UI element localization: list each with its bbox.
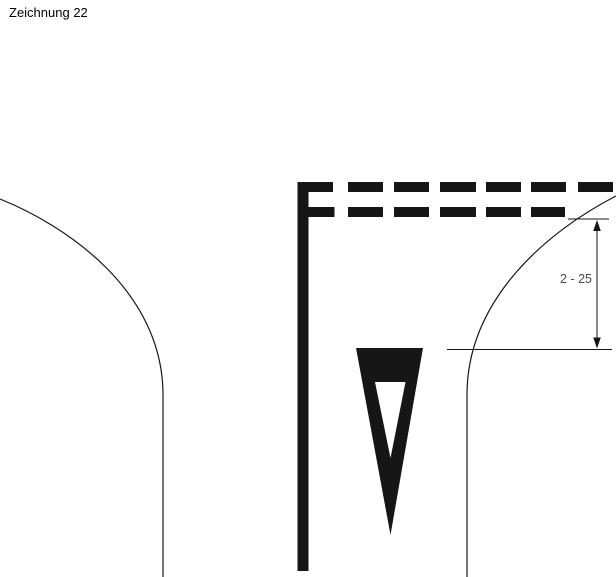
lane-dash: [486, 207, 521, 217]
right-curb-curve: [467, 196, 616, 577]
road-marking-diagram: 2 - 25: [0, 0, 616, 577]
lane-dash: [298, 207, 335, 217]
left-curb-curve: [0, 199, 163, 577]
lane-dash: [440, 207, 476, 217]
lane-dash: [440, 182, 476, 192]
dimension-arrowhead-up: [593, 220, 601, 231]
lane-dash: [298, 182, 334, 192]
lane-dash: [486, 182, 521, 192]
lane-dash: [531, 182, 566, 192]
dimension-label: 2 - 25: [560, 272, 592, 286]
dashed-lane-line-bottom-row: [298, 207, 566, 217]
lane-dash: [394, 207, 429, 217]
technical-drawing-canvas: Zeichnung 22: [0, 0, 616, 577]
lane-dash: [531, 207, 565, 217]
lane-dash: [348, 207, 383, 217]
lane-dash: [348, 182, 383, 192]
lane-dash: [578, 182, 613, 192]
solid-edge-line: [298, 182, 309, 571]
lane-dash: [394, 182, 429, 192]
dimension-arrowhead-down: [593, 338, 601, 349]
dashed-lane-line-top-row: [298, 182, 614, 192]
yield-triangle-marking: [356, 348, 423, 535]
